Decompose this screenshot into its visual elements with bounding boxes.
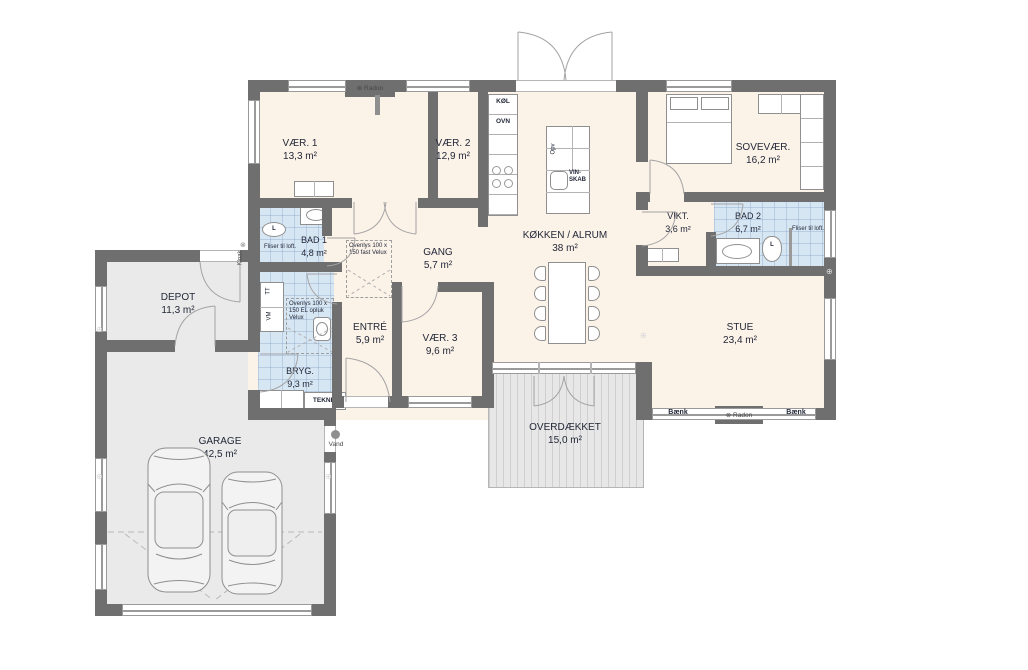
room-area: 9,6 m²: [408, 346, 472, 359]
room-area: 11,3 m²: [133, 305, 223, 318]
room-name: VÆR. 1: [255, 138, 345, 151]
wall-segment: [636, 266, 836, 276]
wall-segment: [438, 282, 492, 292]
bench-label: Bænk: [774, 409, 818, 416]
chair: [534, 286, 546, 301]
room-name: BAD 2: [718, 210, 778, 223]
toilet: L: [262, 222, 286, 237]
room-label-vaer3: VÆR. 3 9,6 m²: [408, 333, 472, 358]
room-area: 23,4 m²: [700, 335, 780, 348]
pillow: [670, 97, 698, 110]
wall-segment: [636, 202, 648, 210]
room-name: VÆR. 3: [408, 333, 472, 346]
room-name: VÆR. 2: [408, 138, 498, 151]
cooktop-burner: [504, 166, 513, 175]
room-name: GANG: [410, 247, 466, 260]
tiles-note: Fliser til loft.: [792, 226, 824, 233]
window: [95, 544, 107, 590]
room-area: 5,9 m²: [338, 335, 402, 348]
dryer-label: TT: [265, 288, 279, 294]
room-name: VIKT.: [650, 210, 706, 223]
wall-segment: [95, 250, 200, 262]
door-arc: [564, 32, 612, 80]
radon-label-bottom: ⊗ Radon: [715, 411, 763, 419]
sewer-icon: ⊗: [240, 242, 246, 250]
tiles-note: Fliser til loft.: [262, 244, 298, 251]
cooktop-burner: [492, 166, 501, 175]
room-area: 9,3 m²: [270, 378, 330, 391]
radon-icon: ⊗: [726, 412, 731, 419]
room-area: 5,7 m²: [410, 260, 466, 273]
room-name: SOVEVÆR.: [718, 142, 808, 155]
dining-table: [548, 262, 586, 344]
wall-segment: [418, 198, 488, 208]
shelf-divider: [662, 248, 663, 262]
radon-label-top: ⊗ Radon: [345, 84, 395, 92]
room-label-sovevaer: SOVEVÆR. 16,2 m²: [718, 142, 808, 167]
wall-tie-icon: ⊕: [96, 473, 103, 481]
wall-segment: [260, 198, 352, 208]
wall-segment: [248, 260, 260, 352]
chair: [534, 326, 546, 341]
wine-cabinet-label: VIN-SKAB: [569, 170, 597, 184]
room-name: OVERDÆKKET: [505, 422, 625, 435]
wall-tie-icon: ⊕: [826, 268, 833, 276]
room-label-vaer2: VÆR. 2 12,9 m²: [408, 138, 498, 163]
water-dot: [331, 430, 340, 439]
wall-segment: [636, 362, 652, 420]
room-name: KØKKEN / ALRUM: [505, 230, 625, 243]
garage-door: [122, 604, 312, 616]
pillow: [701, 97, 729, 110]
laundry-divider: [260, 307, 284, 308]
chair: [534, 266, 546, 281]
fridge-label: KØL: [488, 98, 518, 105]
wall-segment: [332, 302, 342, 408]
wardrobe-divider: [781, 94, 782, 114]
skylight-fixed: Ovenlys 100 x 150 fast Velux: [346, 240, 392, 298]
room-name: GARAGE: [180, 436, 260, 449]
room-label-bryg: BRYG. 9,3 m²: [270, 365, 330, 390]
room-name: STUE: [700, 322, 780, 335]
radon-icon: ⊗: [357, 85, 362, 92]
wall-segment: [636, 245, 648, 266]
wall-segment: [636, 92, 648, 162]
room-label-depot: DEPOT 11,3 m²: [133, 292, 223, 317]
wall-segment: [472, 396, 482, 408]
wall-segment: [260, 262, 332, 272]
room-area: 16,2 m²: [718, 155, 808, 168]
island-sink: [550, 171, 568, 190]
room-label-bad2: BAD 2 6,7 m²: [718, 210, 778, 235]
cooktop-burner: [504, 179, 513, 188]
water-label: Vand: [318, 441, 354, 448]
room-name: BRYG.: [270, 365, 330, 378]
chair: [534, 306, 546, 321]
toilet: L: [762, 236, 782, 262]
window: [95, 458, 107, 512]
skylight-openable: Ovenlys 100 x 150 EL opluk Velux: [286, 298, 334, 354]
wall-segment: [332, 262, 342, 272]
room-area: 42,5 m²: [180, 449, 260, 462]
window: [288, 80, 346, 92]
room-area: 13,3 m²: [255, 151, 345, 164]
room-label-gang: GANG 5,7 m²: [410, 247, 466, 272]
window: [408, 396, 472, 408]
wall-segment: [636, 192, 650, 202]
room-area: 38 m²: [505, 243, 625, 256]
room-label-entre: ENTRÉ 5,9 m²: [338, 322, 402, 347]
window: [824, 210, 836, 258]
front-door-opening: [344, 396, 388, 408]
room-label-stue: STUE 23,4 m²: [700, 322, 780, 347]
radon-pipe: [375, 95, 380, 115]
wall-segment: [482, 282, 494, 408]
blanket-line: [667, 122, 731, 123]
room-area: 6,7 m²: [718, 223, 778, 236]
room-area: 12,9 m²: [408, 151, 498, 164]
wall-segment: [215, 340, 260, 352]
wall-segment: [388, 396, 408, 408]
oven-label: OVN: [488, 118, 518, 125]
room-label-koekken: KØKKEN / ALRUM 38 m²: [505, 230, 625, 255]
sliding-glass-door: [492, 362, 636, 374]
cooktop-burner: [492, 179, 501, 188]
wall-segment: [816, 408, 836, 420]
window: [824, 298, 836, 360]
door-opening: [516, 80, 616, 92]
island-divider: [546, 192, 590, 193]
wall-segment: [684, 192, 836, 202]
sewer-label: Kloak: [233, 255, 245, 261]
wall-tie-icon: ⊕: [640, 332, 647, 340]
bench-label: Bænk: [656, 409, 700, 416]
room-label-vikt: VIKT. 3,6 m²: [650, 210, 706, 235]
room-area: 3,6 m²: [650, 223, 706, 236]
room-label-vaer1: VÆR. 1 13,3 m²: [255, 138, 345, 163]
glass-mullion: [538, 362, 540, 374]
door-arc: [518, 32, 566, 80]
room-label-garage: GARAGE 42,5 m²: [180, 436, 260, 461]
wall-tie-icon: ⊕: [96, 326, 103, 334]
wall-segment: [248, 408, 336, 420]
room-area: 15,0 m²: [505, 435, 625, 448]
glass-mullion: [590, 362, 592, 374]
window: [406, 80, 470, 92]
washer-label: VM: [265, 313, 279, 319]
window: [324, 462, 336, 514]
dishwasher-label: Opv: [548, 146, 564, 152]
room-label-overdaekket: OVERDÆKKET 15,0 m²: [505, 422, 625, 447]
wall-segment: [95, 604, 122, 616]
wall-segment: [322, 203, 332, 236]
room-name: DEPOT: [133, 292, 223, 305]
shower-partition: [789, 228, 792, 266]
floor-plan: KØL OVN Opv VIN-SKAB L L TT VM TEKNIK: [0, 0, 1028, 670]
sink-bowl: [722, 244, 752, 259]
cabinet-divider: [314, 181, 315, 197]
window: [666, 80, 732, 92]
wall-tie-icon: ⊕: [325, 473, 332, 481]
room-name: ENTRÉ: [338, 322, 402, 335]
wall-segment: [248, 390, 260, 408]
wall-segment: [107, 340, 175, 352]
wall-segment: [706, 232, 716, 266]
